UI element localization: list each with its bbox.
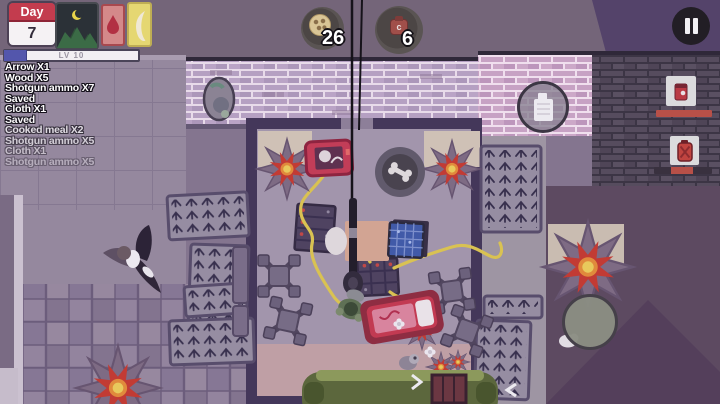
dog-bed <box>375 147 425 197</box>
wall-pickup-button[interactable] <box>517 81 569 133</box>
game-screen: Day 7 LV 10 Arrow X1 Wood X5 Shotgun amm… <box>0 0 720 404</box>
green-car <box>302 370 498 404</box>
night-mountains-icon <box>55 2 99 50</box>
movement-joystick[interactable] <box>562 294 618 350</box>
soda-can-icon <box>673 80 689 102</box>
food-count: 26 <box>322 27 344 50</box>
feed-item: Cloth X1 <box>5 146 94 157</box>
fire-flower-2 <box>424 141 481 198</box>
item-slot-jerry-can[interactable] <box>670 136 699 165</box>
bench-2 <box>233 306 248 336</box>
doorway-gap <box>341 118 373 129</box>
feed-item: Shotgun ammo X7 <box>5 83 94 94</box>
level-label: LV 10 <box>5 51 138 61</box>
pickup-feed: Arrow X1 Wood X5 Shotgun ammo X7 Saved C… <box>5 62 94 167</box>
corner-tiles-light <box>0 368 18 404</box>
feed-item: Arrow X1 <box>5 62 94 73</box>
wall-zombie <box>204 78 234 120</box>
jerry-can-icon <box>676 139 694 162</box>
generator-crate-2 <box>357 258 399 296</box>
farm-plot-3 <box>184 283 240 317</box>
feed-item: Cloth X1 <box>5 104 94 115</box>
durability-bar-2 <box>654 167 712 174</box>
water-jug-icon <box>530 91 556 123</box>
solar-panel <box>388 219 429 258</box>
farm-plot-6 <box>484 296 542 318</box>
moon-crescent-icon <box>127 2 152 47</box>
farm-plot-1 <box>167 192 249 240</box>
white-mat <box>325 227 347 255</box>
blood-droplet-icon <box>101 4 125 46</box>
durability-bar-1 <box>656 110 712 117</box>
wall-top-edge-right <box>478 51 720 55</box>
wooden-door <box>432 375 466 403</box>
item-slot-soda-can[interactable] <box>666 76 696 106</box>
pause-icon <box>685 18 690 34</box>
coin-count: 6 <box>402 28 413 51</box>
feed-item: Shotgun ammo X5 <box>5 157 94 168</box>
bench-1 <box>233 247 248 303</box>
feed-item: Cooked meal X2 <box>5 125 94 136</box>
red-stove-machine <box>305 140 353 176</box>
coin-counter-button[interactable]: c 6 <box>375 6 423 54</box>
day-value: 7 <box>9 22 55 45</box>
day-panel: Day 7 <box>9 3 55 45</box>
pause-button[interactable] <box>672 7 710 45</box>
farm-plot-5 <box>481 146 541 232</box>
food-counter-button[interactable]: 26 <box>301 7 344 50</box>
wall-top-edge <box>186 57 478 61</box>
day-label: Day <box>9 3 55 22</box>
